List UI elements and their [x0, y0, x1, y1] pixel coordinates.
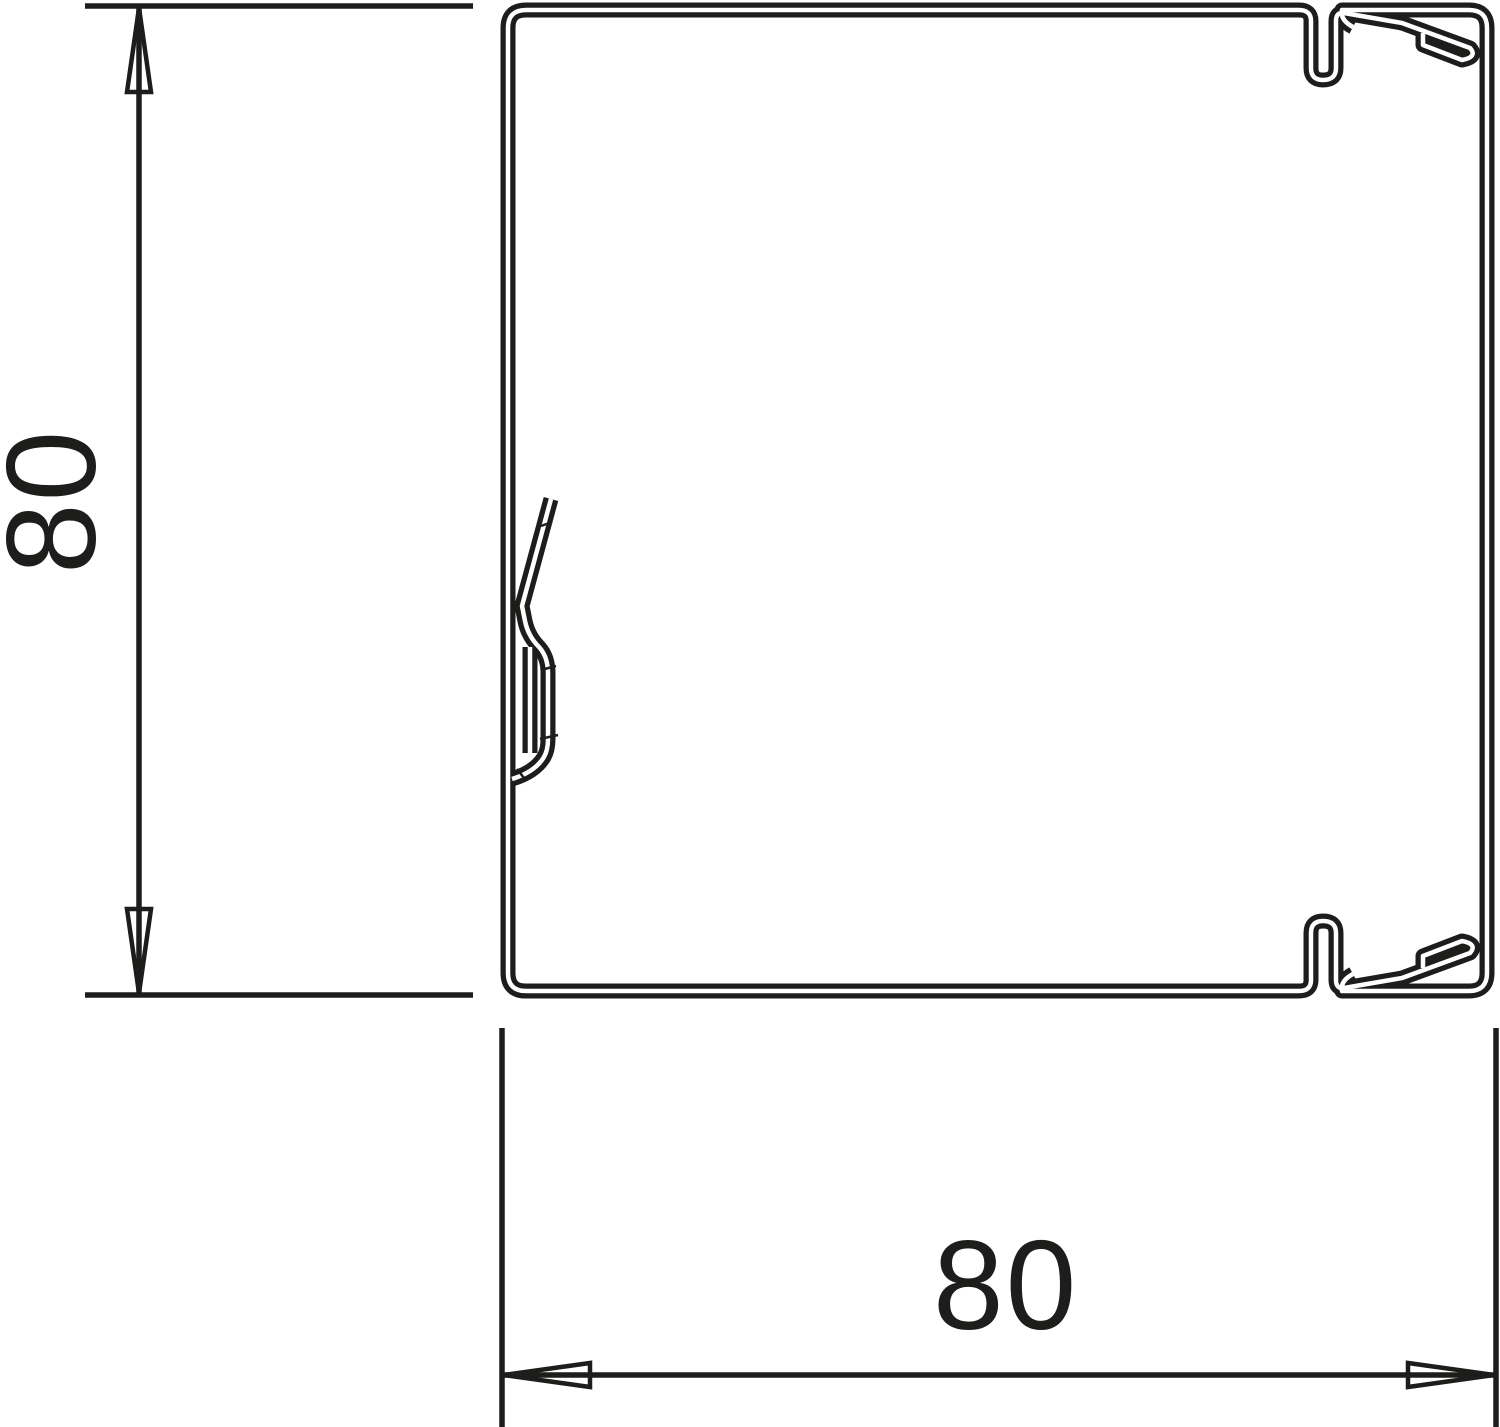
base-sheet-inner-line — [508, 10, 1473, 991]
cover-sheet-path — [1342, 10, 1487, 991]
height-dimension-label: 80 — [0, 429, 122, 574]
base-sheet-path — [508, 10, 1473, 991]
drawing-canvas: 80 80 — [0, 0, 1500, 1427]
profile-outline — [508, 10, 1487, 991]
profile-outline-inner-lines — [508, 10, 1487, 991]
height-dimension — [85, 6, 473, 995]
width-dimension-label: 80 — [933, 1214, 1078, 1356]
cover-sheet-inner-line — [1342, 10, 1487, 991]
trunking-cross-section-drawing: 80 80 — [0, 0, 1500, 1427]
